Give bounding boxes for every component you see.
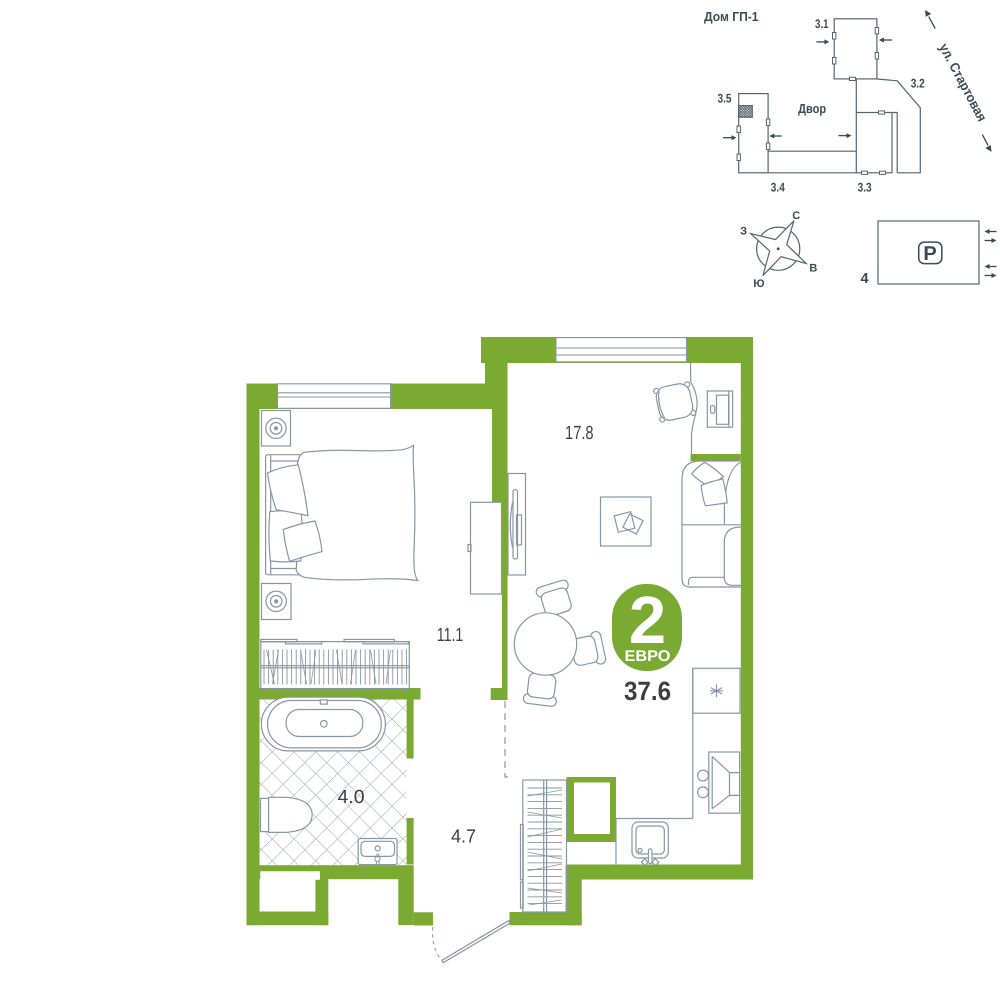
svg-text:В: В [809, 263, 817, 275]
svg-text:Дом ГП-1: Дом ГП-1 [704, 9, 759, 24]
svg-text:Р: Р [923, 243, 936, 265]
svg-text:3.1: 3.1 [815, 17, 829, 31]
svg-text:37.6: 37.6 [624, 676, 671, 706]
svg-text:3.2: 3.2 [911, 77, 925, 91]
svg-text:4.0: 4.0 [338, 787, 365, 808]
svg-text:ЕВРО: ЕВРО [625, 648, 671, 665]
svg-text:Ю: Ю [753, 278, 764, 290]
svg-text:С: С [792, 210, 800, 222]
svg-text:3.5: 3.5 [718, 91, 732, 105]
svg-text:2: 2 [629, 583, 666, 658]
svg-text:3.3: 3.3 [858, 181, 872, 195]
svg-text:З: З [740, 226, 747, 238]
svg-text:Двор: Двор [798, 101, 826, 116]
svg-text:3.4: 3.4 [771, 181, 785, 195]
svg-text:4.7: 4.7 [451, 827, 476, 848]
svg-text:11.1: 11.1 [437, 625, 464, 646]
svg-text:4: 4 [860, 271, 868, 287]
svg-text:17.8: 17.8 [565, 423, 594, 444]
